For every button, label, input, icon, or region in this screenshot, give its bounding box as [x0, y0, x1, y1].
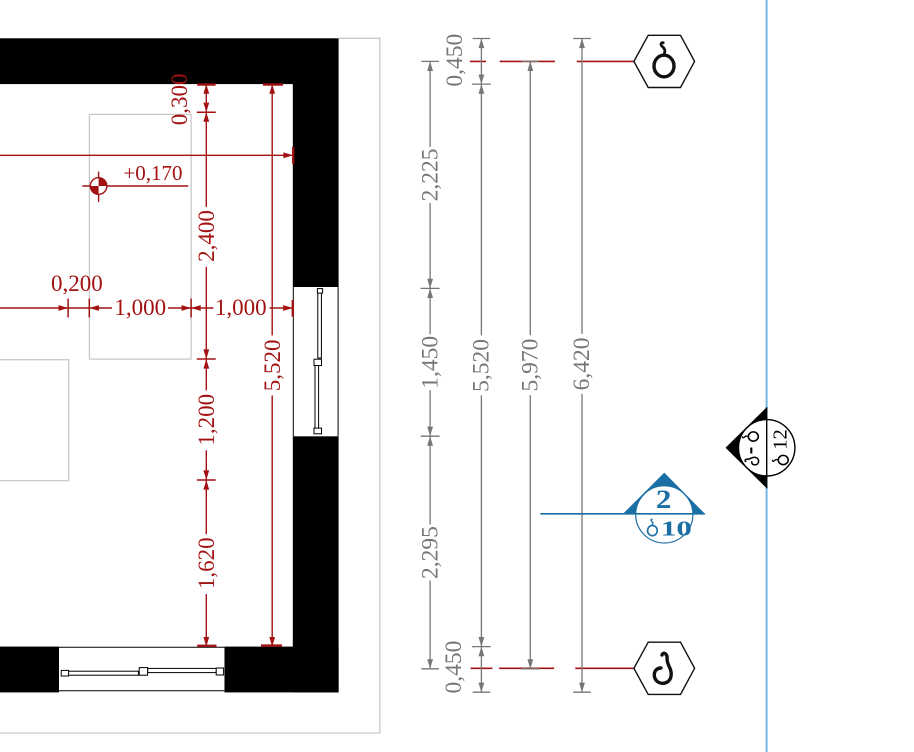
svg-text:5,520: 5,520: [469, 339, 495, 392]
svg-text:2: 2: [656, 485, 672, 514]
svg-text:2,225: 2,225: [417, 148, 443, 201]
svg-text:12: 12: [770, 429, 792, 450]
svg-text:0,200: 0,200: [51, 271, 103, 296]
svg-text:10: 10: [661, 516, 692, 540]
svg-text:2,295: 2,295: [417, 526, 443, 579]
svg-text:0,450: 0,450: [441, 641, 467, 694]
svg-text:+0,170: +0,170: [123, 161, 182, 185]
svg-text:6,420: 6,420: [569, 337, 595, 390]
svg-text:1,620: 1,620: [194, 537, 219, 589]
svg-text:1,000: 1,000: [114, 295, 166, 320]
svg-text:0,300: 0,300: [167, 74, 192, 126]
svg-text:2,400: 2,400: [194, 210, 219, 262]
svg-text:5,970: 5,970: [518, 339, 544, 392]
svg-text:0,450: 0,450: [442, 34, 468, 87]
svg-text:1,450: 1,450: [417, 336, 443, 389]
svg-text:5,520: 5,520: [260, 340, 285, 392]
svg-text:1,000: 1,000: [215, 295, 267, 320]
svg-text:1,200: 1,200: [194, 394, 219, 446]
